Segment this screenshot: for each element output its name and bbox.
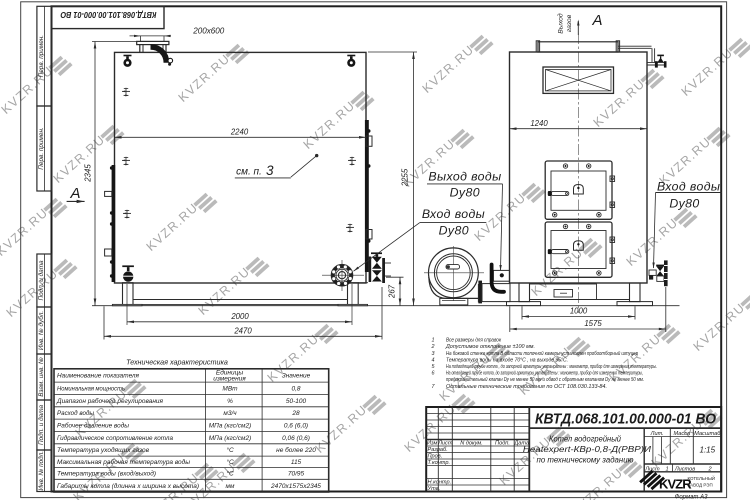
svg-text:2: 2 [431,344,435,350]
svg-text:мм: мм [226,483,235,490]
svg-text:Вход воды: Вход воды [422,207,485,221]
svg-text:Температура уходящих газов: Температура уходящих газов [57,446,150,454]
svg-text:измерения: измерения [213,376,246,383]
svg-text:4: 4 [432,357,435,363]
svg-text:2240: 2240 [230,127,249,136]
svg-text:Выход воды: Выход воды [428,170,501,184]
svg-text:Температура воды (вход/выход): Температура воды (вход/выход) [57,470,156,478]
svg-text:KVZR.RU: KVZR.RU [569,465,626,500]
svg-text:Dу80: Dу80 [669,196,699,210]
svg-text:Dу80: Dу80 [450,186,480,200]
svg-text:Т.контр.: Т.контр. [428,460,451,466]
svg-text:KVZR.RU: KVZR.RU [144,200,201,254]
svg-text:7: 7 [432,384,436,390]
svg-text:°С: °С [226,470,234,478]
svg-text:Перв. примен.: Перв. примен. [38,127,45,169]
svg-text:Подп. и дата: Подп. и дата [37,260,45,300]
svg-text:см. п.: см. п. [236,167,262,178]
svg-text:На подводящей трубе котла ,: На подводящей трубе котла , до запорной … [446,363,657,370]
svg-text:по техническому заданию: по техническому заданию [537,455,634,465]
svg-text:1000: 1000 [570,307,588,316]
svg-text:0,6 (6,0): 0,6 (6,0) [284,422,308,429]
svg-text:267: 267 [388,284,397,299]
svg-text:КВТД.068.101.00.000-01 ВО: КВТД.068.101.00.000-01 ВО [60,10,156,20]
svg-text:КОТЕЛЬНЫЙ: КОТЕЛЬНЫЙ [688,476,716,481]
svg-text:KVZR.RU: KVZR.RU [313,402,370,456]
svg-text:°С: °С [226,446,234,454]
svg-text:Взам. инв. №: Взам. инв. № [38,357,45,397]
svg-text:Номинальная мощность: Номинальная мощность [57,386,126,393]
svg-text:KVZR.RU: KVZR.RU [0,205,51,259]
svg-text:Heatexpert-КВр-0,8-Д(РВР)И: Heatexpert-КВр-0,8-Д(РВР)И [523,444,652,454]
svg-text:Формат А3: Формат А3 [675,494,708,500]
svg-text:1:15: 1:15 [700,446,716,455]
svg-text:Гидравлическое сопротивление к: Гидравлическое сопротивление котла [57,434,173,442]
svg-text:Расход воды: Расход воды [57,409,94,417]
svg-text:Котел водогрейный: Котел водогрейный [549,433,621,443]
svg-text:0,06 (0,6): 0,06 (0,6) [282,435,310,442]
svg-text:Значение: Значение [282,373,311,380]
svg-text:Вход воды: Вход воды [657,180,720,194]
svg-text:На отводящей трубе котла ,до з: На отводящей трубе котла ,до запорной ар… [446,370,643,377]
svg-text:0,8: 0,8 [291,386,300,393]
svg-text:Все размеры для справок: Все размеры для справок [446,338,501,344]
svg-text:Допустимое отклонение ±100 мм: Допустимое отклонение ±100 мм. [445,344,535,350]
svg-text:KVZR.RU: KVZR.RU [691,300,748,354]
svg-text:Dу80: Dу80 [439,224,469,238]
svg-text:2255: 2255 [401,168,410,187]
svg-text:KVZR.RU: KVZR.RU [196,264,253,318]
svg-text:На боковой стенке котла В обла: На боковой стенке котла В области топочн… [446,350,638,357]
svg-text:Инв. № подл.: Инв. № подл. [37,451,45,491]
svg-text:2345: 2345 [83,164,92,183]
svg-text:Перв. примен.: Перв. примен. [38,35,45,77]
svg-text:KVZR.RU: KVZR.RU [624,215,681,269]
svg-text:3: 3 [432,351,435,357]
svg-text:1240: 1240 [530,119,548,128]
svg-text:200х600: 200х600 [192,26,225,35]
svg-text:Температура воды на входе 70°: Температура воды на входе 70°С , на выхо… [446,357,568,363]
svg-text:газов: газов [566,14,573,32]
svg-text:Изм: Изм [427,441,438,447]
svg-text:°С: °С [226,458,234,466]
svg-text:предохранительный клапан Dу н: предохранительный клапан Dу не менее 50 … [446,376,644,383]
svg-text:КВТД.068.101.00.000-01 ВО: КВТД.068.101.00.000-01 ВО [535,411,717,427]
svg-text:Техническая характеристика: Техническая характеристика [126,358,228,367]
svg-text:%: % [227,398,233,405]
svg-text:1: 1 [432,338,435,344]
svg-text:Лист: Лист [437,441,453,447]
svg-text:Подп.: Подп. [495,441,510,447]
svg-text:МВт: МВт [222,386,238,393]
svg-text:70/95: 70/95 [288,471,305,478]
svg-text:50-100: 50-100 [286,398,307,405]
svg-text:KVZR.RU: KVZR.RU [420,42,477,96]
svg-text:Рабочее давление воды: Рабочее давление воды [57,421,129,429]
svg-text:Утв.: Утв. [427,486,441,492]
svg-text:Габариты котла (длинна х ширин: Габариты котла (длинна х ширина х высота… [57,482,199,490]
svg-text:А: А [69,185,80,202]
svg-text:Пров.: Пров. [428,454,443,460]
svg-text:KVZR.RU: KVZR.RU [591,76,648,130]
svg-text:2470х1575х2345: 2470х1575х2345 [270,483,321,490]
svg-text:Остальные технические требован: Остальные технические требования по ОСТ … [446,384,607,390]
svg-text:KVZR.RU: KVZR.RU [0,63,56,117]
svg-text:2000: 2000 [230,312,249,321]
svg-text:Н.контр.: Н.контр. [428,480,452,486]
svg-text:Наименование показателя: Наименование показателя [57,373,140,380]
svg-text:5: 5 [432,364,436,370]
svg-text:2470: 2470 [233,326,252,335]
svg-text:Подп. и дата: Подп. и дата [37,405,45,445]
svg-text:KVZR.RU: KVZR.RU [51,132,108,186]
svg-text:А: А [591,12,602,29]
svg-text:Масса: Масса [674,431,691,437]
svg-text:не более 220: не более 220 [276,446,316,454]
svg-text:28: 28 [291,410,300,417]
svg-text:Максимальная рабочая температу: Максимальная рабочая температура воды [57,458,190,466]
svg-text:Диапазон рабочего регулировани: Диапазон рабочего регулирования [56,397,164,405]
svg-text:KVZR.RU: KVZR.RU [176,51,233,105]
svg-text:3: 3 [266,163,274,178]
svg-text:ЗАВОД РЭП: ЗАВОД РЭП [688,483,713,488]
svg-text:МПа (кгс/см2): МПа (кгс/см2) [209,435,251,442]
svg-text:Масштаб: Масштаб [694,431,721,437]
svg-text:Лит.: Лит. [650,431,664,437]
svg-text:МПа (кгс/см2): МПа (кгс/см2) [209,422,251,429]
svg-text:Выход: Выход [557,13,565,34]
svg-text:6: 6 [432,371,435,377]
svg-text:115: 115 [291,459,302,466]
svg-text:Разраб.: Разраб. [428,447,448,453]
svg-text:N докум.: N докум. [460,441,483,447]
svg-text:KVZR.RU: KVZR.RU [301,98,358,152]
svg-text:1575: 1575 [584,319,602,328]
svg-text:м3/ч: м3/ч [223,410,237,417]
svg-text:KVZR.RU: KVZR.RU [679,45,736,99]
svg-text:Инв. № дубл.: Инв. № дубл. [37,311,45,350]
